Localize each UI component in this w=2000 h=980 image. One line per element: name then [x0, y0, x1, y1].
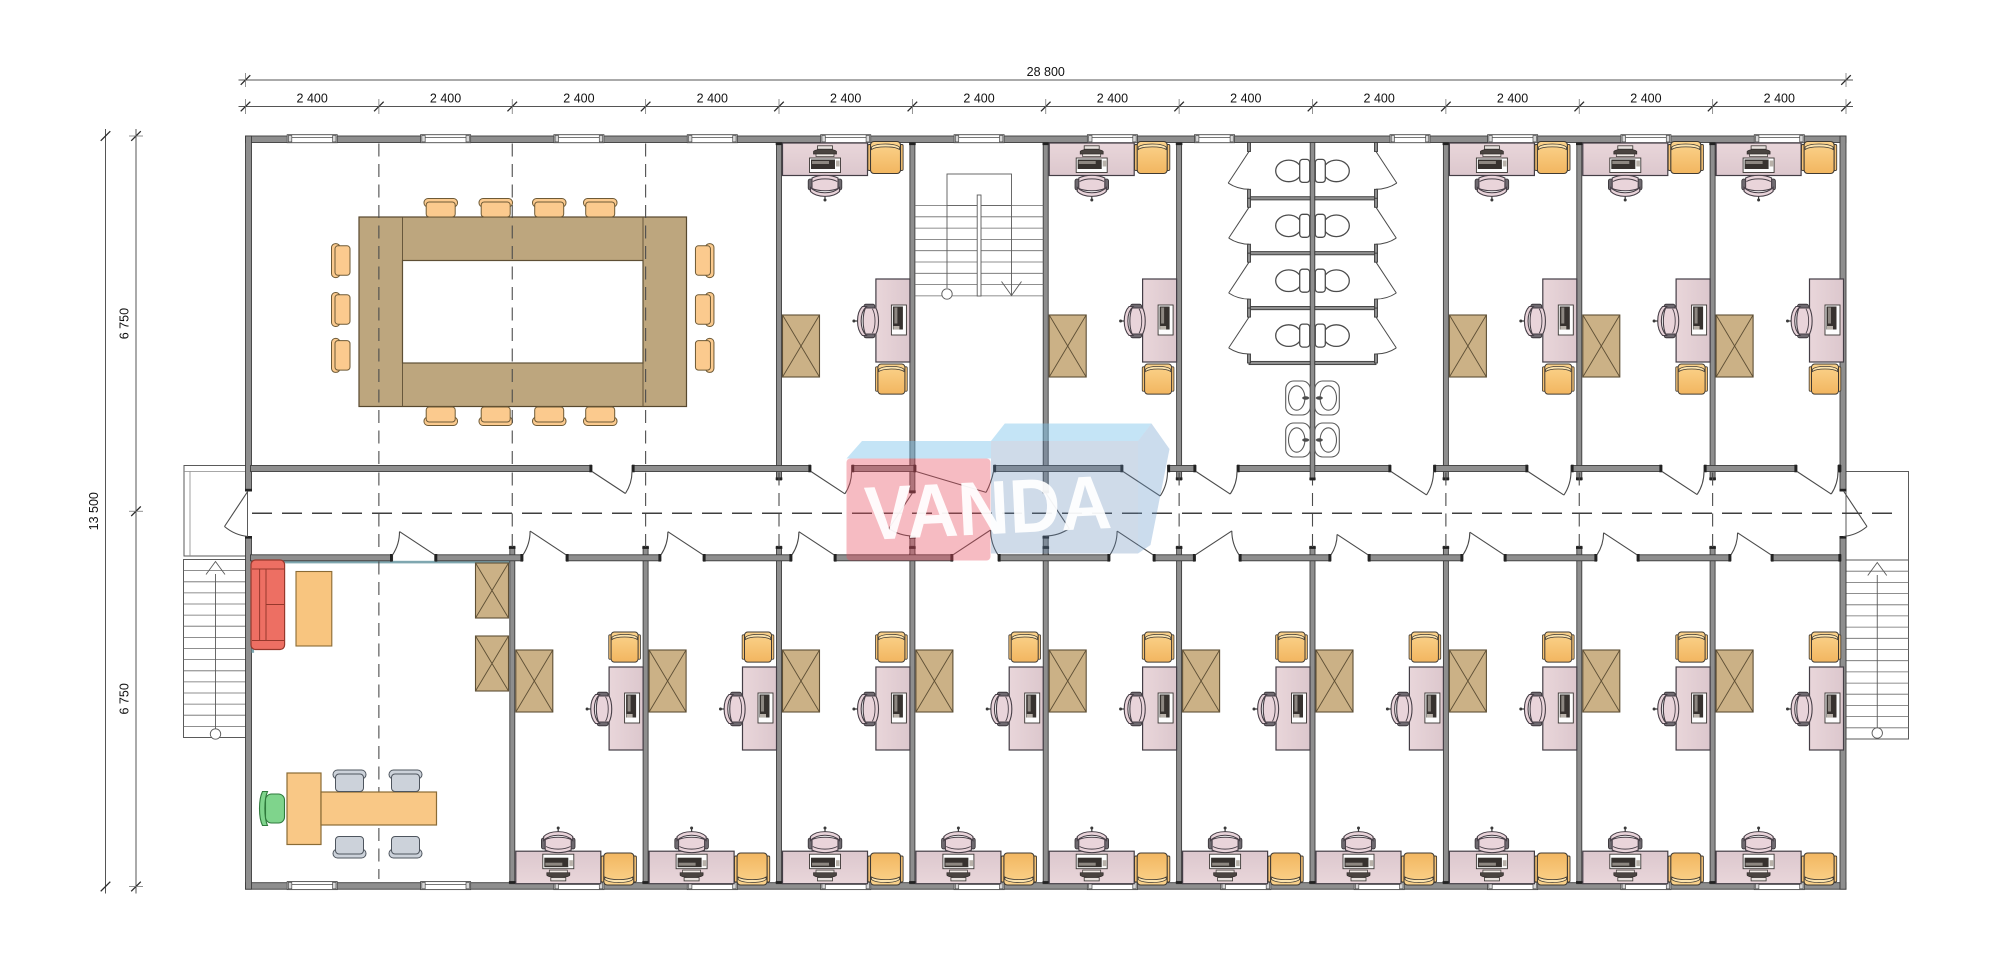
svg-text:2 400: 2 400: [1364, 92, 1395, 106]
svg-text:2 400: 2 400: [430, 92, 461, 106]
svg-text:13 500: 13 500: [87, 492, 101, 530]
svg-text:2 400: 2 400: [830, 92, 861, 106]
svg-text:VANDA: VANDA: [863, 460, 1114, 557]
svg-text:2 400: 2 400: [297, 92, 328, 106]
svg-text:2 400: 2 400: [1097, 92, 1128, 106]
svg-text:6 750: 6 750: [118, 683, 132, 714]
svg-text:2 400: 2 400: [1764, 92, 1795, 106]
svg-text:28 800: 28 800: [1027, 65, 1065, 79]
svg-text:2 400: 2 400: [1497, 92, 1528, 106]
svg-text:6 750: 6 750: [118, 308, 132, 339]
svg-text:2 400: 2 400: [1630, 92, 1661, 106]
svg-text:2 400: 2 400: [1230, 92, 1261, 106]
svg-text:2 400: 2 400: [963, 92, 994, 106]
svg-text:2 400: 2 400: [563, 92, 594, 106]
svg-text:2 400: 2 400: [697, 92, 728, 106]
